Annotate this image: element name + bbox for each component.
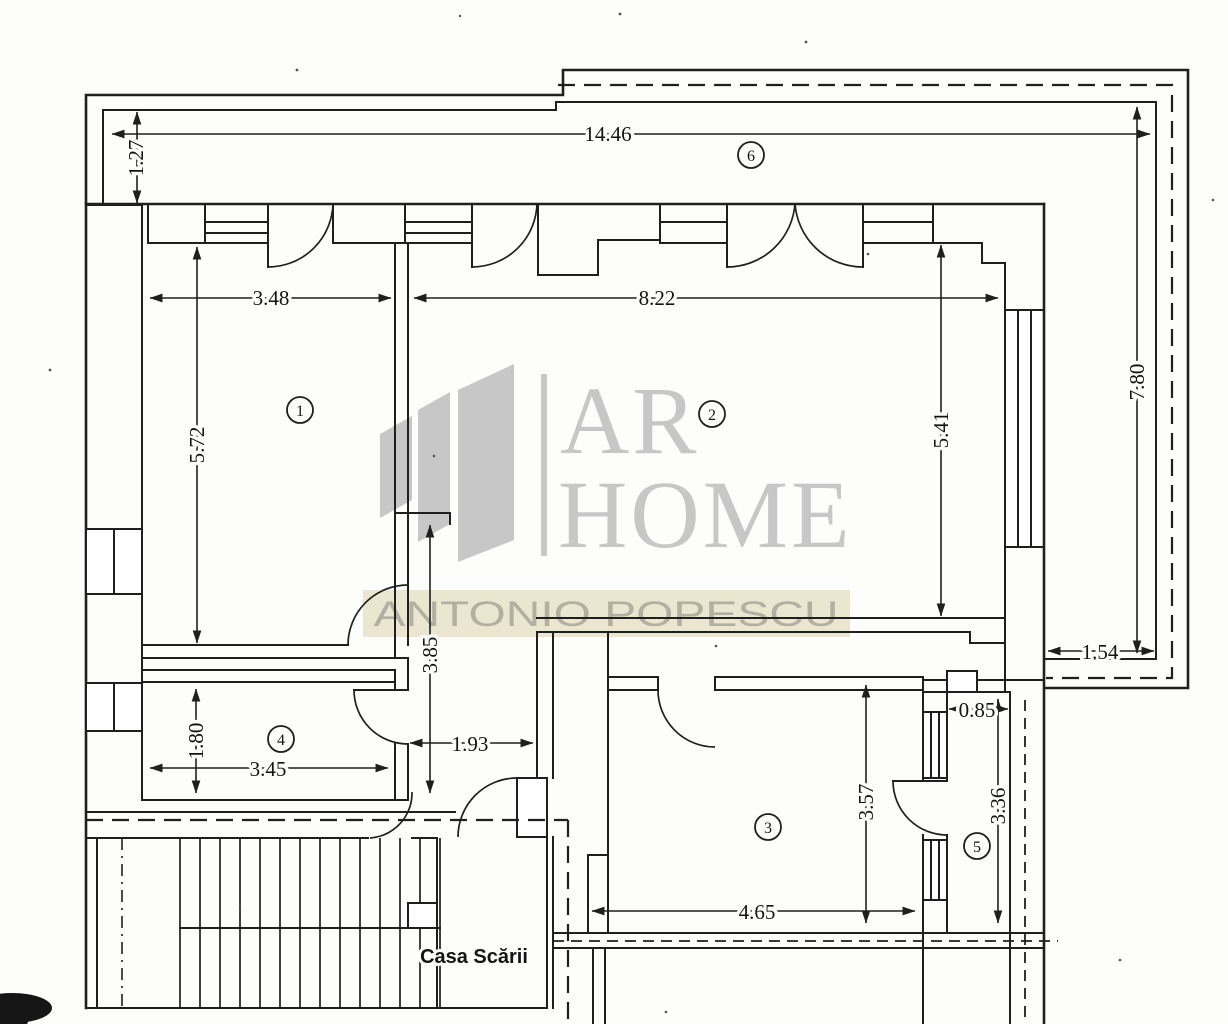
dim-room1-height: 5.72 bbox=[185, 427, 209, 464]
watermark-agent-name: ANTONIO POPESCU bbox=[374, 595, 839, 634]
logo-divider-bar bbox=[541, 374, 547, 556]
dim-room3-width: 4.65 bbox=[739, 900, 776, 924]
hall-right-wall bbox=[537, 632, 553, 778]
room2-right-window bbox=[1005, 310, 1044, 547]
svg-text:5: 5 bbox=[973, 839, 981, 856]
watermark-logo: AR HOME ANTONIO POPESCU bbox=[363, 364, 853, 637]
room-badge-4: 4 bbox=[268, 726, 294, 752]
svg-text:2: 2 bbox=[708, 407, 716, 424]
stair-landing-block bbox=[408, 903, 437, 928]
lobby-door-arc bbox=[458, 778, 517, 837]
dim-right-height: 7.80 bbox=[1125, 364, 1149, 401]
top-wall-window-mullions bbox=[205, 222, 933, 233]
svg-text:6: 6 bbox=[747, 148, 755, 165]
top-wall-jambs bbox=[148, 204, 933, 267]
dim-room4-width: 3.45 bbox=[250, 757, 287, 781]
room35-window bbox=[923, 840, 947, 900]
dim-hall-width: 1.93 bbox=[452, 732, 489, 756]
svg-text:4: 4 bbox=[277, 732, 285, 749]
lobby-wall-chunk bbox=[517, 778, 547, 837]
room5-niche bbox=[947, 671, 977, 692]
logo-panel-icon bbox=[418, 392, 450, 542]
stairwell-label: Casa Scării bbox=[420, 946, 528, 968]
room1-bottom-wall bbox=[142, 645, 408, 658]
dim-room4-height: 1.80 bbox=[184, 723, 208, 760]
dim-top-width: 14.46 bbox=[584, 122, 631, 146]
dim-room1-width: 3.48 bbox=[253, 286, 290, 310]
svg-text:3: 3 bbox=[764, 820, 772, 837]
dim-hall-length: 3.85 bbox=[418, 637, 442, 674]
dim-room2-width: 8.22 bbox=[639, 286, 676, 310]
dim-room3-height: 3.57 bbox=[854, 784, 878, 821]
dim-room5-width: 0.85 bbox=[959, 698, 996, 722]
stair-treads bbox=[180, 838, 440, 1008]
room-badge-6: 6 bbox=[738, 142, 764, 168]
room-badge-3: 3 bbox=[755, 814, 781, 840]
stair-door-arc bbox=[370, 792, 412, 838]
room3-door-arc bbox=[658, 690, 715, 747]
top-right-corner-step bbox=[982, 243, 1005, 310]
dim-balcony-depth: 1.27 bbox=[124, 140, 148, 177]
room-badge-5: 5 bbox=[964, 833, 990, 859]
room4-door-arc bbox=[354, 690, 408, 744]
floor-plan-scan: AR HOME ANTONIO POPESCU bbox=[0, 0, 1228, 1024]
logo-panel-icon bbox=[458, 364, 514, 562]
corridor-dashed-line bbox=[86, 820, 568, 1024]
watermark-brand-top: AR bbox=[560, 367, 699, 474]
top-wall-pier-step bbox=[538, 204, 660, 275]
dim-room2-height: 5.41 bbox=[929, 412, 953, 449]
dim-room5-height: 3.36 bbox=[986, 788, 1010, 825]
room35-door-arc bbox=[893, 781, 947, 835]
door-swing-arcs-top bbox=[268, 203, 863, 267]
room-badge-1: 1 bbox=[287, 397, 313, 423]
svg-text:1: 1 bbox=[296, 403, 304, 420]
room-badge-2: 2 bbox=[699, 401, 725, 427]
dim-balcony-right-width: 1.54 bbox=[1082, 640, 1119, 664]
lower-room-walls bbox=[593, 948, 605, 1024]
scanned-floor-plan-page: AR HOME ANTONIO POPESCU bbox=[0, 0, 1228, 1024]
watermark-brand-bottom: HOME bbox=[558, 461, 853, 568]
room35-window bbox=[923, 712, 947, 778]
